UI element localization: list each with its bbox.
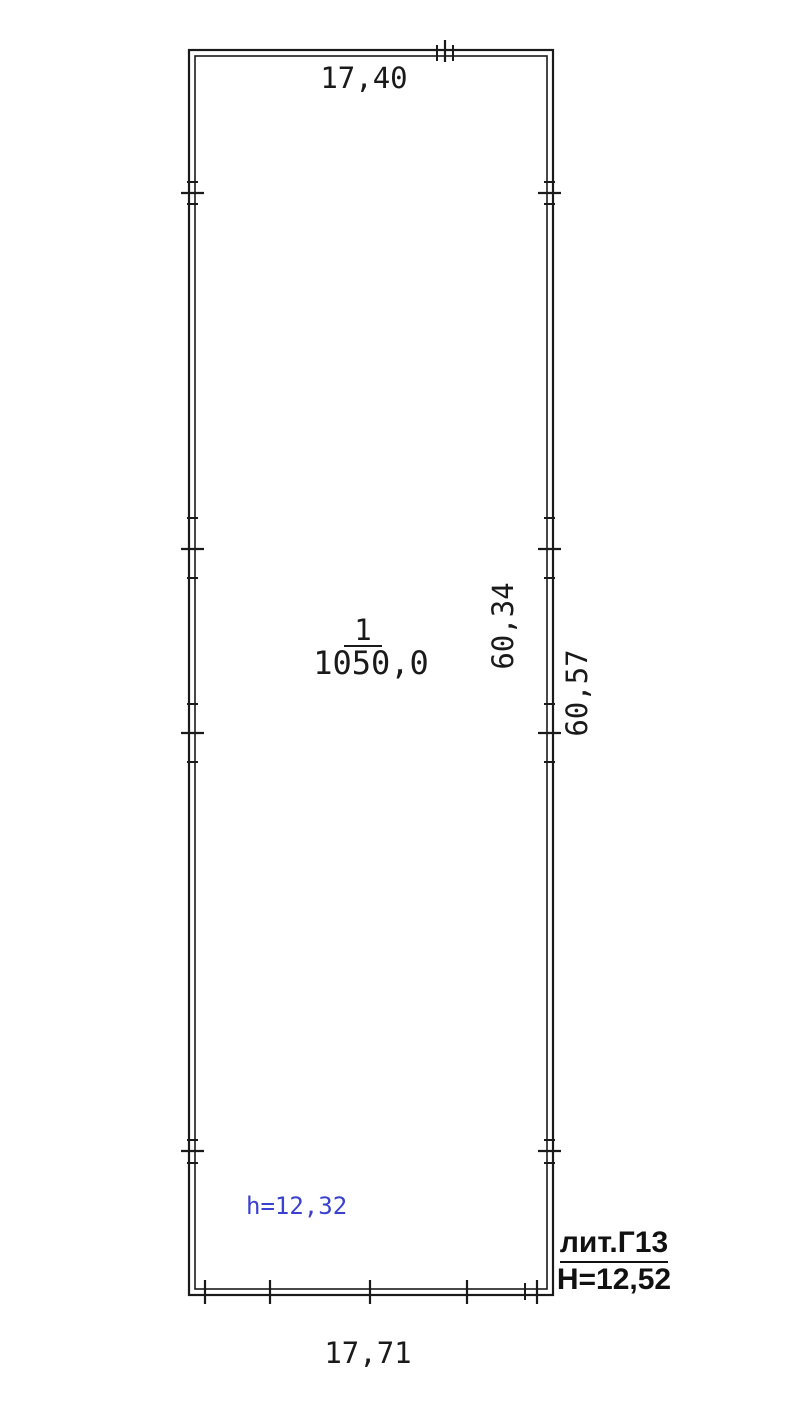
- plan-canvas: [0, 0, 795, 1420]
- room-number-fraction: 1: [333, 617, 393, 647]
- liter-label: лит.Г13: [560, 1226, 668, 1263]
- room-number-label: 1: [344, 617, 381, 647]
- building-height-label: Н=12,52: [556, 1263, 672, 1297]
- ceiling-height-note: h=12,32: [246, 1192, 347, 1220]
- dimension-side-outer: 60,57: [562, 623, 592, 763]
- dimension-side-inner: 60,34: [488, 556, 518, 696]
- dimension-bottom-width: 17,71: [302, 1336, 434, 1370]
- liter-block: лит.Г13 Н=12,52: [556, 1226, 672, 1297]
- dimension-top-width: 17,40: [298, 61, 430, 95]
- room-area-label: 1050,0: [291, 644, 451, 682]
- floor-plan: 17,40 60,34 60,57 1 1050,0 h=12,32 лит.Г…: [0, 0, 795, 1420]
